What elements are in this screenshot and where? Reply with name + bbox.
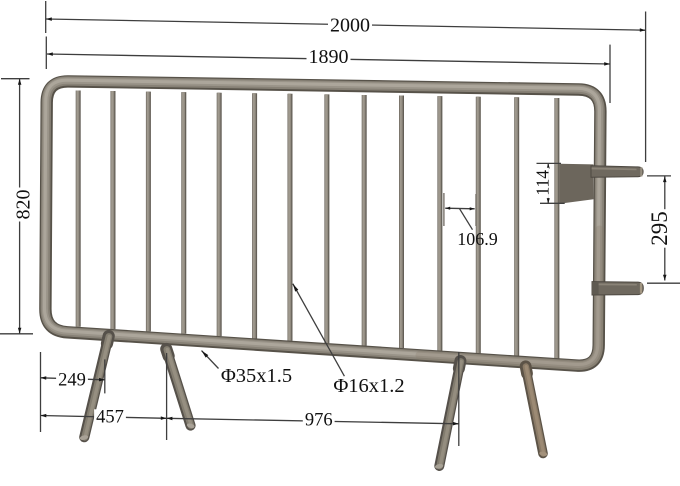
svg-text:457: 457 — [96, 407, 124, 427]
svg-text:106.9: 106.9 — [457, 229, 498, 249]
svg-text:2000: 2000 — [330, 15, 370, 37]
svg-text:976: 976 — [305, 411, 333, 431]
svg-text:820: 820 — [13, 190, 35, 220]
svg-text:1890: 1890 — [309, 46, 349, 68]
svg-text:295: 295 — [647, 211, 672, 246]
svg-text:114: 114 — [533, 170, 553, 196]
svg-text:Φ16x1.2: Φ16x1.2 — [333, 375, 404, 397]
svg-text:Φ35x1.5: Φ35x1.5 — [221, 365, 292, 387]
svg-text:249: 249 — [58, 370, 86, 390]
